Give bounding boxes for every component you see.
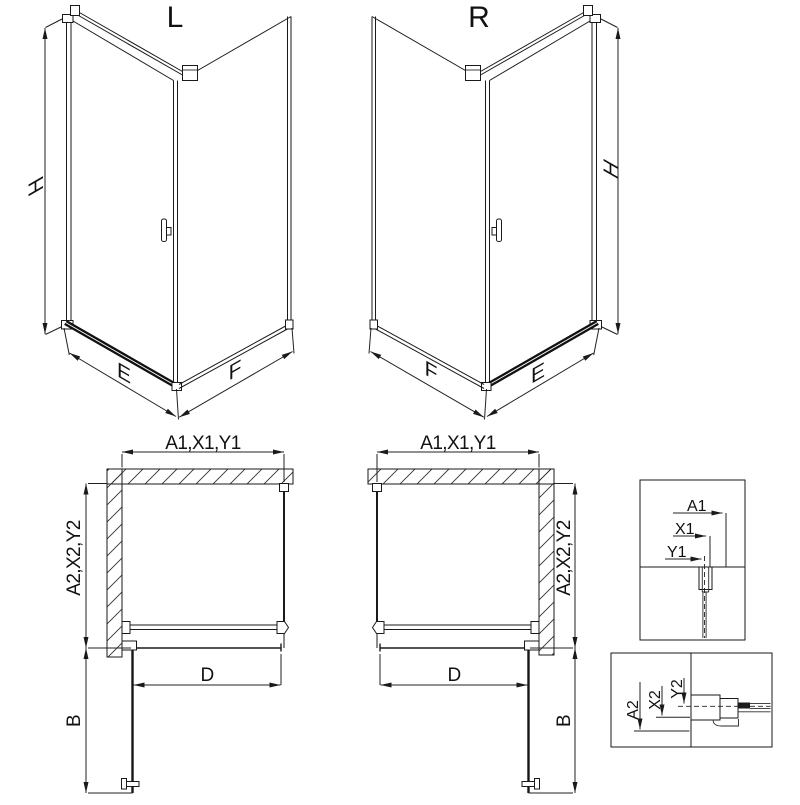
hinge-bracket	[122, 641, 137, 650]
variant-label-right: R	[468, 1, 490, 34]
plan-left-width-label: A1,X1,Y1	[165, 433, 241, 454]
height-label-right: H	[599, 154, 623, 183]
side-width-label-left: F	[229, 354, 242, 385]
plan-right-width-label: A1,X1,Y1	[420, 433, 496, 454]
door-handle	[162, 219, 172, 242]
iso-view-left-linework	[45, 6, 294, 420]
side-width-label-right: F	[425, 355, 438, 386]
plan-left-swing-label: B	[64, 715, 85, 727]
variant-label-left: L	[167, 1, 184, 34]
corner-connector	[183, 66, 198, 81]
hinge-post	[62, 15, 74, 330]
plan-left-depth-label: A2,X2,Y2	[64, 520, 85, 596]
plan-left-walls	[107, 469, 293, 657]
detail-x2-label: X2	[647, 690, 664, 710]
door-panel	[66, 21, 182, 391]
wall-right	[539, 469, 554, 655]
wall-profile-section	[699, 556, 712, 638]
detail-a2-label: A2	[625, 700, 642, 720]
detail-a1-label: A1	[687, 498, 707, 515]
support-bar-plan	[122, 622, 289, 649]
plan-left-door-label: D	[200, 665, 213, 686]
detail-box-depth	[611, 653, 772, 747]
wall-left	[107, 469, 122, 657]
door-handle-plan	[122, 779, 127, 790]
plan-right-depth-label: A2,X2,Y2	[554, 520, 575, 596]
height-label-left: H	[24, 172, 48, 201]
shower-enclosure-technical-drawing: L H E F R H F E A1,X1,Y1 A2,X2,Y2 D B A1…	[0, 0, 800, 800]
corner-bracket	[277, 622, 289, 634]
plan-right-walls	[368, 469, 554, 655]
side-panel-plan	[280, 484, 289, 622]
detail-y2-label: Y2	[669, 679, 686, 699]
detail-y1-label: Y1	[667, 544, 687, 561]
wall-top	[107, 469, 293, 484]
plan-right-door-label: D	[447, 665, 460, 686]
detail-x1-label: X1	[675, 521, 695, 538]
wall-top	[368, 469, 554, 484]
door-plan	[122, 641, 282, 793]
iso-view-right-linework	[369, 6, 618, 420]
plan-right-swing-label: B	[554, 715, 575, 727]
wall-profile-section	[678, 695, 771, 726]
drawing-canvas: L H E F R H F E A1,X1,Y1 A2,X2,Y2 D B A1…	[0, 0, 800, 800]
